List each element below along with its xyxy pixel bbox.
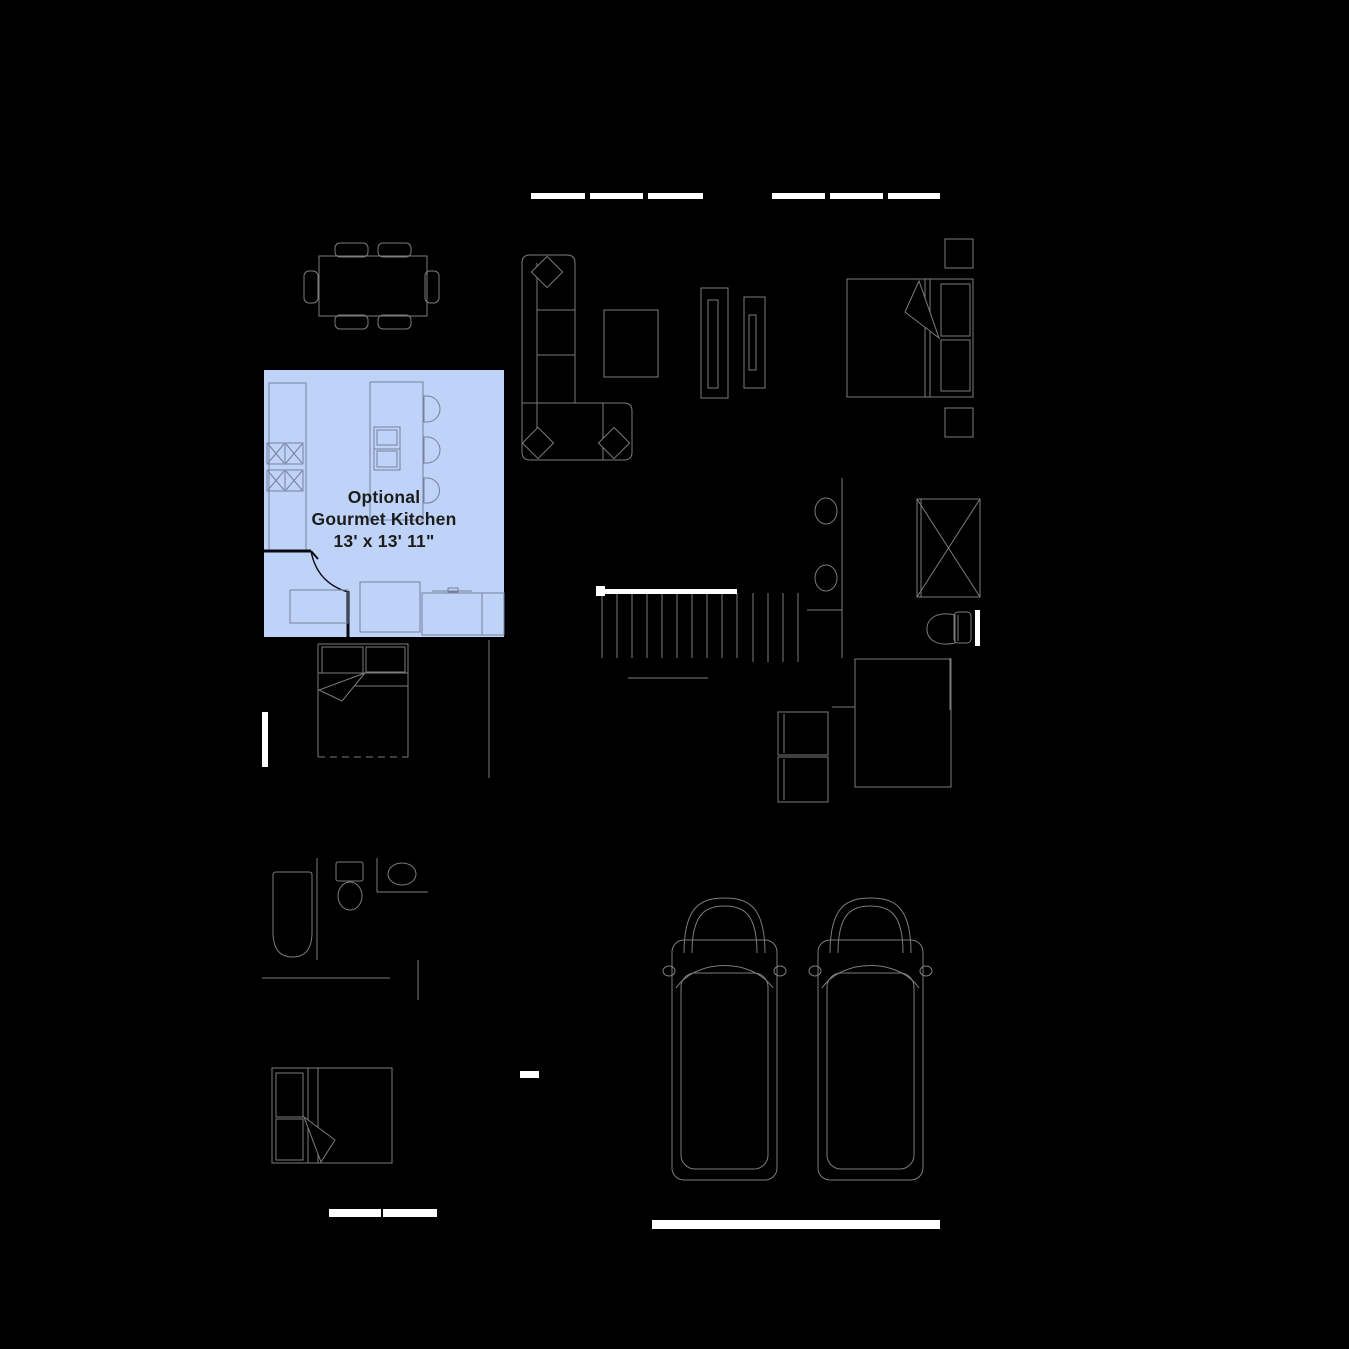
tv-console	[701, 288, 728, 398]
vanity-sink-icon	[815, 498, 837, 524]
staircase	[596, 586, 798, 678]
window	[648, 193, 703, 199]
laundry	[778, 659, 951, 802]
closet	[855, 659, 951, 787]
sheet-fold-icon	[905, 281, 939, 338]
car-cabin	[827, 973, 914, 1169]
bedroom-3	[272, 1068, 392, 1163]
car-windshield-line	[676, 966, 773, 989]
car-cabin	[681, 973, 768, 1169]
car-roof-inner	[692, 906, 757, 953]
media-cabinet	[744, 297, 765, 388]
garage	[663, 898, 932, 1180]
floor-plan-svg: Optional Gourmet Kitchen 13' x 13' 11"	[0, 0, 1349, 1349]
master-bedroom	[847, 239, 973, 437]
shower-icon	[917, 499, 980, 597]
window	[383, 1209, 437, 1217]
sheet-fold-icon	[304, 1117, 335, 1162]
window	[772, 193, 825, 199]
living-room	[522, 255, 765, 460]
pillow	[276, 1119, 303, 1160]
dining-chair	[335, 243, 368, 257]
dining-chair	[335, 315, 368, 329]
dining-chair	[378, 315, 411, 329]
window	[531, 193, 585, 199]
car-roof-inner	[838, 906, 903, 953]
garage-door	[652, 1220, 940, 1229]
toilet-icon	[336, 862, 363, 910]
floor-plan: Optional Gourmet Kitchen 13' x 13' 11"	[0, 0, 1349, 1349]
toilet-bowl	[927, 614, 955, 644]
kitchen-label-line2: Gourmet Kitchen	[312, 509, 457, 529]
toilet-tank	[954, 612, 971, 643]
window	[520, 1071, 539, 1078]
window	[830, 193, 883, 199]
nightstand	[945, 408, 973, 437]
vanity-sink-icon	[815, 565, 837, 591]
pillow	[366, 647, 405, 672]
coffee-table	[604, 310, 658, 377]
hall-bathroom	[807, 478, 980, 710]
car-windshield-line	[822, 966, 919, 989]
double-bed	[847, 279, 973, 397]
pillow	[322, 647, 363, 673]
window	[590, 193, 643, 199]
window	[262, 712, 268, 767]
bathtub-icon	[273, 872, 312, 957]
throw-pillow-icon	[531, 256, 562, 287]
car-mirror	[809, 966, 821, 976]
kitchen-label-line1: Optional	[348, 487, 421, 507]
optional-gourmet-kitchen: Optional Gourmet Kitchen 13' x 13' 11"	[264, 370, 504, 637]
kitchen-label-line3: 13' x 13' 11"	[334, 531, 435, 551]
car-mirror	[920, 966, 932, 976]
media-cabinet-inner	[749, 315, 756, 370]
wall-segment	[975, 610, 980, 646]
car-icon	[809, 898, 932, 1180]
dryer-icon	[778, 757, 828, 802]
toilet-icon	[927, 612, 971, 644]
tv-screen	[708, 300, 718, 388]
pillow	[941, 340, 970, 391]
toilet-bowl	[338, 882, 362, 910]
double-bed	[272, 1068, 392, 1163]
dining-set	[304, 243, 439, 329]
sheet-fold-icon	[319, 673, 365, 701]
corner-sink-icon	[388, 863, 416, 885]
dining-table	[319, 256, 427, 316]
window	[329, 1209, 381, 1217]
throw-pillow-icon	[522, 427, 553, 458]
windows	[262, 193, 940, 1229]
bedroom-2	[318, 640, 489, 778]
washer-icon	[778, 712, 828, 755]
nightstand	[945, 239, 973, 268]
dining-chair	[378, 243, 411, 257]
dining-chair	[304, 271, 318, 303]
stair-handrail	[598, 589, 737, 594]
car-mirror	[774, 966, 786, 976]
toilet-tank	[336, 862, 363, 881]
pillow	[276, 1073, 303, 1117]
window	[888, 193, 940, 199]
car-mirror	[663, 966, 675, 976]
car-icon	[663, 898, 786, 1180]
bathroom-2	[262, 858, 428, 1000]
pillow	[941, 284, 970, 336]
